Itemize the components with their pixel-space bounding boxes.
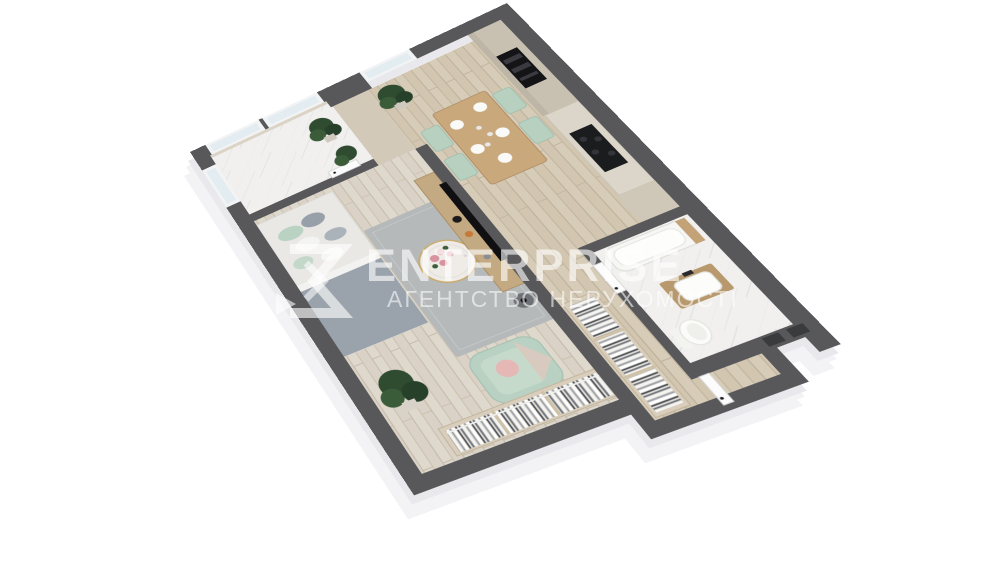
scene-3d-wrapper	[0, 0, 1000, 562]
floor-plan-render: ENTERPRISE АГЕНТСТВО НЕРУХОМОСТІ	[0, 0, 1000, 562]
apartment-plan	[190, 3, 865, 526]
plan-svg	[190, 3, 865, 526]
